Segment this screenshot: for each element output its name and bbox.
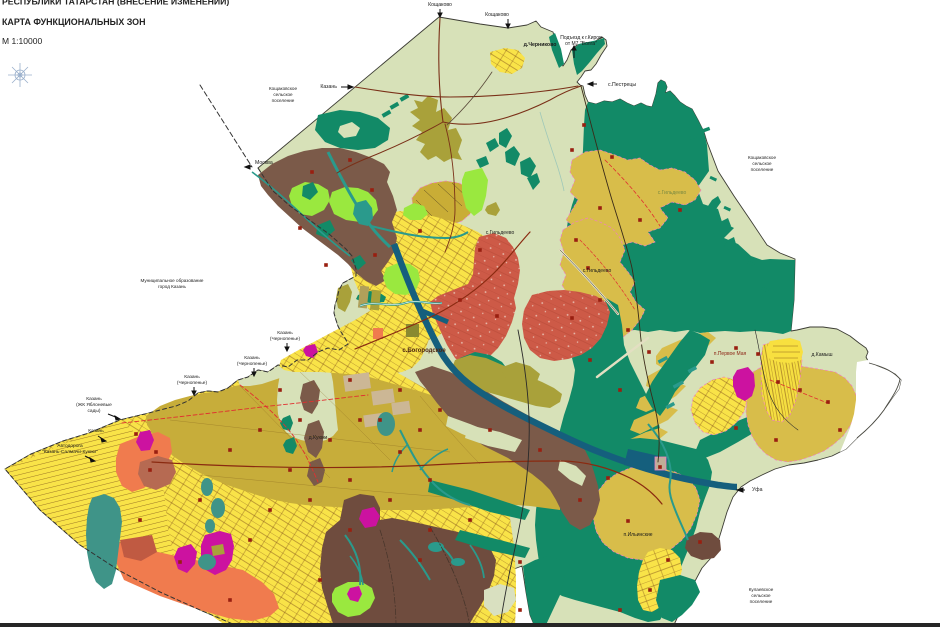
svg-text:сельское: сельское (751, 593, 771, 598)
svg-text:Уфа: Уфа (752, 487, 763, 493)
svg-text:поселение: поселение (751, 167, 774, 172)
svg-text:Казань: Казань (277, 330, 293, 336)
svg-text:"Казань-Салмачи-Куюки": "Казань-Салмачи-Куюки" (42, 449, 98, 455)
svg-text:п.Первое Мая: п.Первое Мая (714, 351, 747, 357)
svg-text:с.Богородское: с.Богородское (402, 348, 446, 354)
svg-text:сельское: сельское (752, 161, 772, 166)
svg-text:д.Куюки: д.Куюки (309, 435, 328, 441)
svg-text:с.Гильдеево: с.Гильдеево (486, 230, 515, 236)
svg-text:сады): сады) (88, 408, 101, 414)
svg-text:Кощаково: Кощаково (428, 2, 452, 8)
svg-text:Казань: Казань (320, 84, 337, 90)
svg-text:Автодорога: Автодорога (57, 443, 83, 449)
svg-text:д.Камыш: д.Камыш (811, 352, 832, 358)
svg-text:п.Ильинские: п.Ильинские (623, 532, 652, 538)
svg-text:Кощаковское: Кощаковское (748, 155, 776, 160)
svg-text:(Чернопенье): (Чернопенье) (270, 336, 301, 342)
svg-text:Казань: Казань (86, 396, 102, 402)
svg-text:Муниципальное образование: Муниципальное образование (141, 278, 204, 283)
svg-text:Кулаевское: Кулаевское (749, 587, 774, 592)
svg-text:поселение: поселение (750, 599, 773, 604)
svg-text:КАРТА ФУНКЦИОНАЛЬНЫХ ЗОН: КАРТА ФУНКЦИОНАЛЬНЫХ ЗОН (2, 17, 146, 27)
svg-text:(Чернопенье): (Чернопенье) (237, 361, 268, 367)
svg-text:д.Черниково: д.Черниково (524, 42, 557, 48)
svg-text:сельское: сельское (273, 92, 293, 97)
svg-text:поселение: поселение (272, 98, 295, 103)
svg-text:(ЖК Яблоневые: (ЖК Яблоневые (76, 402, 112, 408)
svg-text:Казань: Казань (88, 428, 104, 434)
svg-text:от М7 "Волга": от М7 "Волга" (565, 41, 597, 47)
svg-text:(Чернопенье): (Чернопенье) (177, 380, 208, 386)
svg-text:Казань: Казань (184, 374, 200, 380)
svg-text:город Казань: город Казань (158, 284, 186, 289)
svg-text:Казань: Казань (244, 355, 260, 361)
svg-text:с.Гильдеево: с.Гильдеево (658, 190, 687, 196)
svg-text:Кощаковское: Кощаковское (269, 86, 297, 91)
svg-text:Москва: Москва (255, 160, 273, 166)
svg-text:с.Пестрецы: с.Пестрецы (608, 82, 636, 88)
svg-text:РЕСПУБЛИКИ ТАТАРСТАН (ВНЕСЕНИЕ: РЕСПУБЛИКИ ТАТАРСТАН (ВНЕСЕНИЕ ИЗМЕНЕНИЙ… (2, 0, 229, 7)
svg-text:М 1:10000: М 1:10000 (2, 36, 42, 46)
svg-text:с.Гильдеево: с.Гильдеево (583, 268, 612, 274)
svg-text:Кощаково: Кощаково (485, 12, 509, 18)
